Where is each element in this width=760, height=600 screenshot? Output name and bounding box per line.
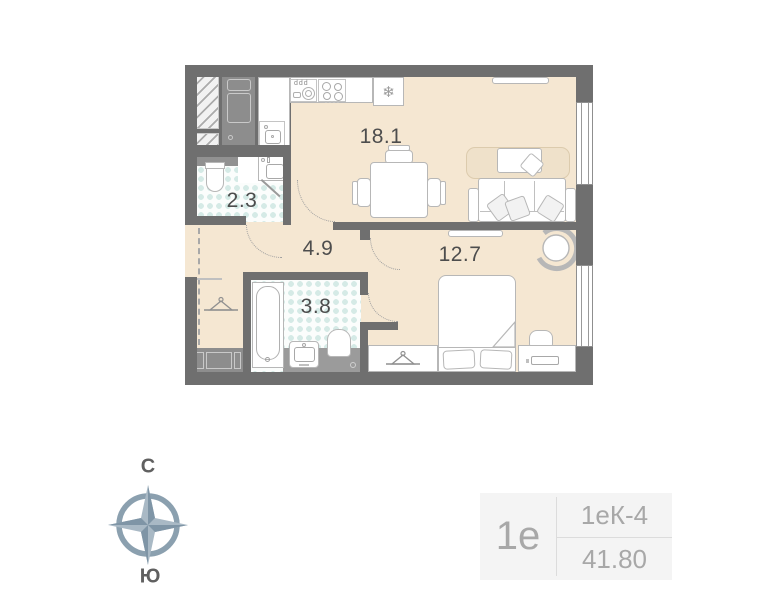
- hanger-icon: [385, 350, 421, 370]
- unit-info-card: 1е 1еК-4 41.80: [480, 493, 672, 580]
- window-living-room: [576, 102, 593, 185]
- wall-right: [576, 65, 593, 102]
- sink-drain: [271, 135, 274, 138]
- wall-bathroom-right-lower: [360, 322, 368, 372]
- dining-table: [370, 162, 428, 218]
- room-label-hallway: 4.9: [303, 237, 334, 261]
- faucet-icon: [264, 125, 268, 129]
- kitchen-sink-icon: [259, 121, 285, 147]
- bathroom-toilet-icon: [327, 329, 351, 357]
- tv-living-room: [492, 77, 549, 84]
- bathtub-inner: [256, 286, 280, 360]
- stove-dot: [329, 101, 331, 103]
- wall-wc-bottom: [185, 216, 246, 225]
- sofa-armrest: [468, 188, 479, 222]
- vent-detail: [227, 93, 251, 123]
- snowflake-icon: ❄: [382, 83, 395, 101]
- compass-south-label: Ю: [140, 566, 161, 589]
- vent-detail: [227, 79, 251, 91]
- wardrobe-shelf-line: [197, 278, 222, 280]
- cabinet-panel: [206, 352, 232, 369]
- sink-bowl: [266, 164, 284, 179]
- wall-top: [185, 65, 593, 77]
- wardrobe-dashed-line: [198, 228, 200, 345]
- cabinet-panel: [234, 352, 241, 369]
- bathtub-drain: [265, 357, 270, 362]
- bathtub-icon: [252, 282, 284, 368]
- sink-bowl: [294, 347, 315, 362]
- layout-code-label: 1еК-4: [557, 493, 672, 537]
- bed-pillow: [443, 349, 476, 370]
- room-label-kitchen-living: 18.1: [360, 125, 403, 149]
- wall-bathroom-left: [243, 272, 251, 372]
- burner-icon: [322, 82, 331, 91]
- cup-icon: [293, 92, 301, 98]
- dining-chair: [427, 178, 441, 207]
- sofa-seam: [534, 181, 535, 211]
- wall-bathroom-right-upper: [360, 280, 368, 295]
- shoe-cabinet: [192, 348, 245, 373]
- wall-bathroom-top: [243, 272, 368, 280]
- plate-icon: [305, 90, 312, 97]
- room-label-wc: 2.3: [227, 189, 258, 213]
- desk: [518, 345, 576, 372]
- hanger-icon: [203, 296, 239, 316]
- room-label-bathroom: 3.8: [301, 295, 332, 319]
- wall-bottom: [185, 372, 593, 385]
- bed-pillow: [480, 349, 513, 370]
- toilet-bowl: [206, 168, 224, 192]
- faucet-icon: [302, 343, 306, 347]
- vent-shaft-block: [222, 73, 255, 150]
- total-area-label: 41.80: [557, 538, 672, 580]
- blanket-fold: [492, 321, 516, 348]
- tv-bedroom: [448, 230, 503, 237]
- stove-dot: [325, 101, 327, 103]
- faucet-icon: [267, 157, 270, 163]
- fridge-icon: ❄: [373, 77, 404, 106]
- unit-type-label: 1е: [480, 493, 556, 580]
- desk-item: [526, 359, 529, 363]
- faucet-icon: [261, 158, 265, 162]
- stove-icon: [318, 79, 346, 102]
- door-hinge-dot: [350, 362, 356, 368]
- bathroom-sink-icon: [289, 341, 319, 368]
- burner-icon: [323, 92, 331, 100]
- compass-rose: [100, 477, 196, 573]
- wall-right: [576, 185, 593, 265]
- cabinet-panel: [196, 352, 204, 369]
- dining-chair: [357, 178, 371, 207]
- sink-base: [299, 364, 309, 366]
- cup-hooks-icon: ddd: [294, 80, 309, 87]
- window-bedroom: [576, 265, 593, 347]
- stove-dot: [333, 101, 335, 103]
- wall-wc-right: [283, 150, 291, 225]
- sofa-armrest: [565, 188, 576, 222]
- floor-plan-page: ddd ❄: [0, 0, 760, 600]
- wall-living-bottom: [333, 222, 576, 230]
- wall-left-lower: [185, 277, 197, 385]
- wall-wc-top: [185, 145, 291, 157]
- wc-sink-icon: [258, 155, 286, 181]
- wall-right: [576, 347, 593, 385]
- desk-lamp: [531, 356, 559, 365]
- room-label-bedroom: 12.7: [439, 243, 482, 267]
- burner-icon: [334, 83, 342, 91]
- armchair-icon: [532, 226, 578, 272]
- wall-stub-bedroom-door: [360, 230, 370, 240]
- vent-dot: [228, 135, 233, 140]
- stove-dot: [337, 101, 339, 103]
- dish-rack-icon: ddd: [290, 79, 317, 102]
- compass-north-label: С: [141, 456, 155, 479]
